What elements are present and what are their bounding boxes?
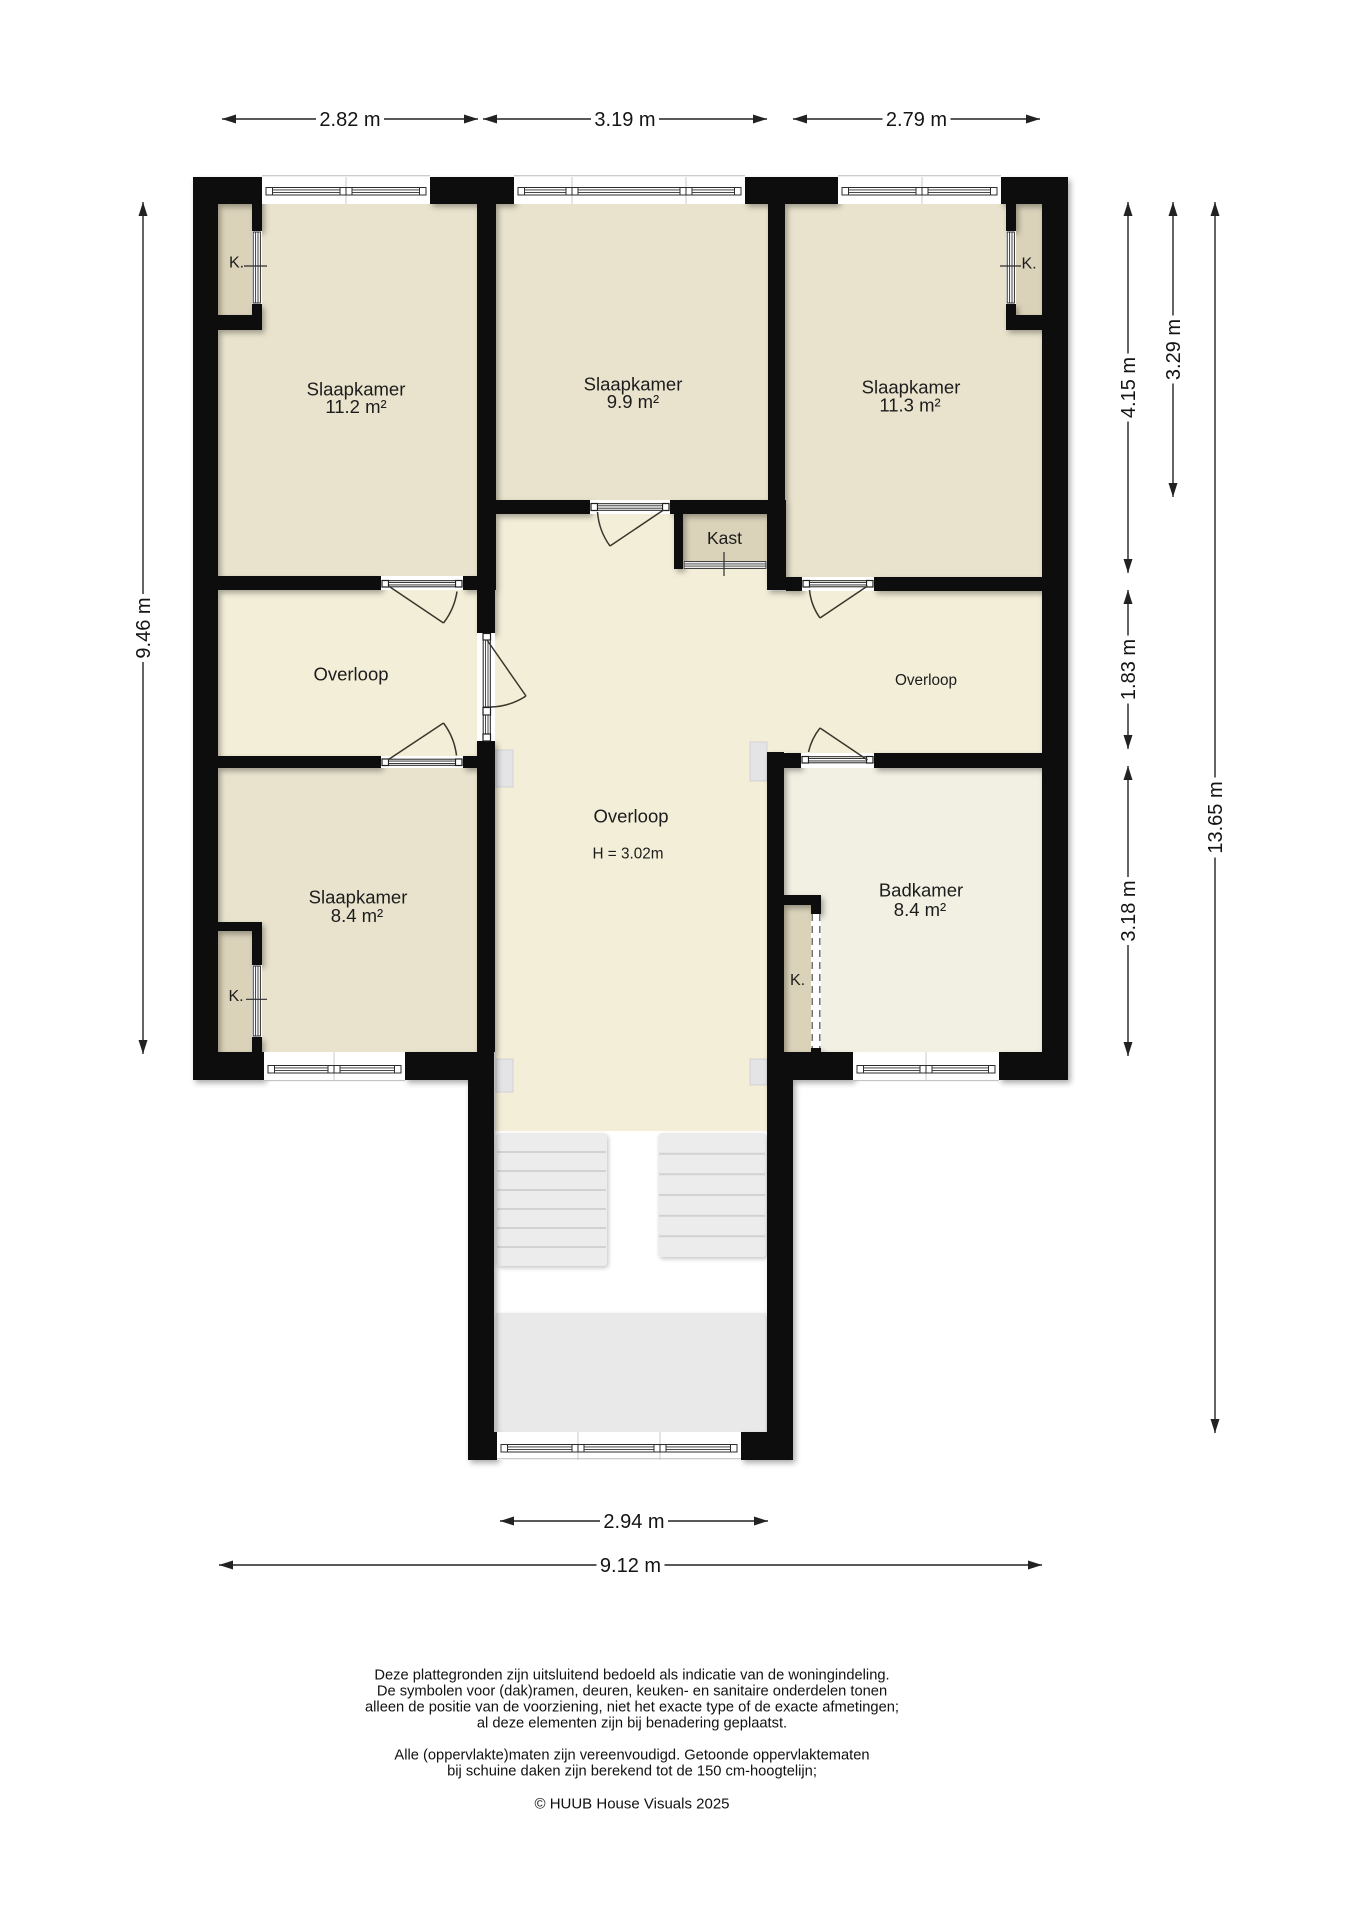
svg-text:2.79 m: 2.79 m — [886, 109, 947, 131]
svg-text:4.15 m: 4.15 m — [1118, 357, 1140, 418]
svg-text:Overloop: Overloop — [895, 672, 957, 689]
svg-text:9.12 m: 9.12 m — [600, 1555, 661, 1577]
svg-text:K.: K. — [1021, 256, 1036, 273]
svg-text:8.4 m²: 8.4 m² — [894, 899, 946, 920]
svg-text:K.: K. — [228, 988, 243, 1005]
svg-text:© HUUB House Visuals 2025: © HUUB House Visuals 2025 — [534, 1796, 729, 1813]
svg-text:Badkamer: Badkamer — [879, 880, 963, 901]
svg-text:bij schuine daken zijn bereken: bij schuine daken zijn berekend tot de 1… — [447, 1764, 817, 1780]
svg-text:9.9 m²: 9.9 m² — [607, 391, 659, 412]
svg-text:De symbolen voor (dak)ramen, d: De symbolen voor (dak)ramen, deuren, keu… — [377, 1684, 887, 1700]
svg-text:3.18 m: 3.18 m — [1118, 880, 1140, 941]
svg-text:alleen de positie van de voorz: alleen de positie van de voorziening, ni… — [365, 1700, 899, 1716]
svg-text:2.82 m: 2.82 m — [319, 109, 380, 131]
svg-text:1.83 m: 1.83 m — [1118, 639, 1140, 700]
svg-text:Kast: Kast — [707, 528, 742, 548]
svg-text:3.19 m: 3.19 m — [594, 109, 655, 131]
svg-text:2.94 m: 2.94 m — [603, 1511, 664, 1533]
svg-text:Overloop: Overloop — [313, 664, 388, 685]
svg-text:11.3 m²: 11.3 m² — [879, 395, 940, 416]
svg-text:K.: K. — [790, 972, 805, 989]
svg-text:al deze elementen zijn bij ben: al deze elementen zijn bij benadering ge… — [477, 1716, 787, 1732]
svg-text:11.2 m²: 11.2 m² — [325, 396, 386, 417]
svg-text:Overloop: Overloop — [593, 806, 668, 827]
svg-text:Deze plattegronden zijn uitslu: Deze plattegronden zijn uitsluitend bedo… — [374, 1668, 889, 1684]
svg-text:H = 3.02m: H = 3.02m — [593, 846, 664, 863]
svg-text:9.46 m: 9.46 m — [133, 597, 155, 658]
svg-text:K.: K. — [229, 255, 244, 272]
svg-text:13.65 m: 13.65 m — [1205, 781, 1227, 853]
svg-text:Alle (oppervlakte)maten zijn v: Alle (oppervlakte)maten zijn vereenvoudi… — [394, 1748, 869, 1764]
svg-text:3.29 m: 3.29 m — [1163, 319, 1185, 380]
svg-text:8.4 m²: 8.4 m² — [331, 905, 383, 926]
